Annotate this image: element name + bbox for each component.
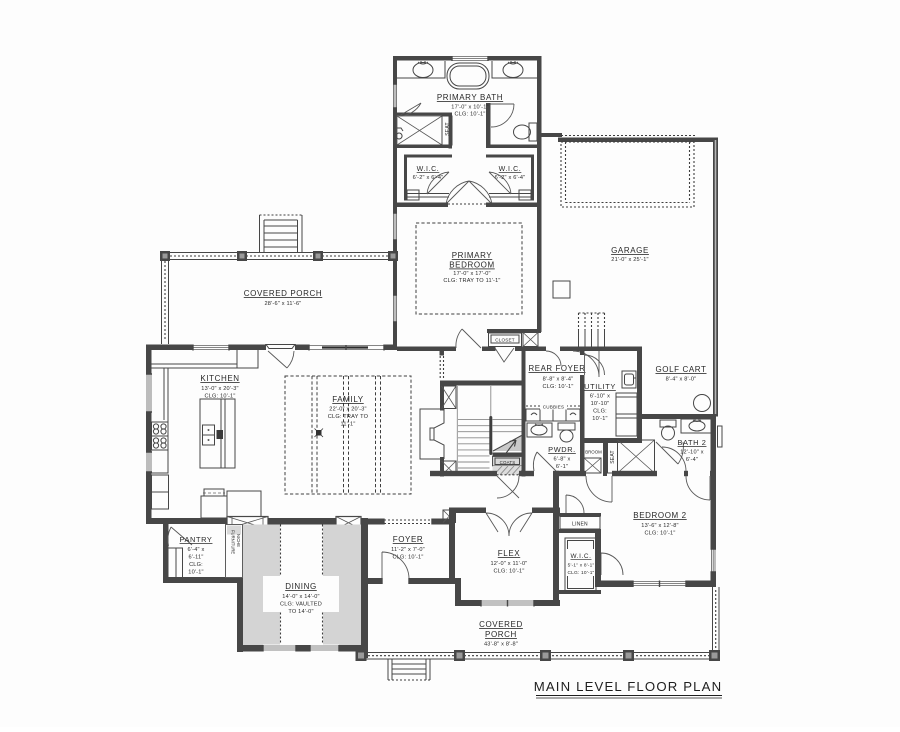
- svg-text:COATS: COATS: [500, 460, 516, 465]
- svg-text:REAR FOYER: REAR FOYER: [529, 364, 586, 373]
- svg-text:12'-10" x: 12'-10" x: [680, 450, 704, 456]
- svg-text:PRIMARY: PRIMARY: [452, 251, 493, 260]
- svg-text:CLG: TRAY TO 11'-1": CLG: TRAY TO 11'-1": [443, 278, 500, 284]
- svg-text:8'-8" x 8'-4": 8'-8" x 8'-4": [543, 377, 574, 383]
- svg-text:6'-4" x: 6'-4" x: [188, 547, 205, 553]
- svg-text:LINEN: LINEN: [572, 522, 588, 528]
- svg-text:10'-10": 10'-10": [591, 401, 610, 407]
- svg-text:BROOM: BROOM: [585, 450, 602, 455]
- svg-text:8'-4" x 8'-0": 8'-4" x 8'-0": [666, 377, 697, 383]
- svg-text:11'-1": 11'-1": [340, 422, 355, 428]
- svg-text:FAMILY: FAMILY: [332, 395, 364, 404]
- svg-text:43'-8" x 8'-8": 43'-8" x 8'-8": [484, 642, 518, 648]
- svg-text:FOYER: FOYER: [393, 535, 424, 544]
- svg-text:6'-8" x: 6'-8" x: [554, 457, 571, 463]
- svg-text:TO 14'-0": TO 14'-0": [288, 609, 313, 615]
- svg-text:MAIN LEVEL FLOOR PLAN: MAIN LEVEL FLOOR PLAN: [534, 679, 723, 694]
- svg-text:CUBBIES: CUBBIES: [543, 405, 565, 410]
- svg-text:17'-0" x 17'-0": 17'-0" x 17'-0": [453, 271, 490, 277]
- svg-text:11'-2" x 7'-0": 11'-2" x 7'-0": [391, 547, 425, 553]
- svg-text:SEAT: SEAT: [610, 450, 616, 464]
- svg-text:COVERED PORCH: COVERED PORCH: [244, 289, 322, 298]
- svg-text:CLOSET: CLOSET: [495, 338, 515, 343]
- svg-text:GARAGE: GARAGE: [611, 246, 649, 255]
- svg-text:6'-10" x: 6'-10" x: [590, 394, 610, 400]
- svg-text:BATH 2: BATH 2: [678, 438, 707, 447]
- svg-text:UTILITY: UTILITY: [584, 382, 616, 391]
- svg-text:SEAT: SEAT: [445, 122, 451, 136]
- svg-text:CLG: 10'-1": CLG: 10'-1": [542, 384, 573, 390]
- svg-text:PANTRY: PANTRY: [180, 535, 213, 544]
- svg-text:NICHE: NICHE: [236, 534, 241, 547]
- svg-text:CLG: 10'-1": CLG: 10'-1": [644, 531, 675, 537]
- svg-text:CLG: VAULTED: CLG: VAULTED: [280, 602, 322, 608]
- svg-text:10'-1": 10'-1": [592, 416, 607, 422]
- svg-text:FLEX: FLEX: [498, 549, 520, 558]
- svg-text:PORCH: PORCH: [485, 630, 517, 639]
- svg-text:BEDROOM: BEDROOM: [449, 261, 495, 270]
- svg-text:PWDR.: PWDR.: [548, 445, 576, 454]
- svg-text:6'-2" x 6'-4": 6'-2" x 6'-4": [413, 175, 444, 181]
- svg-text:28'-6" x 11'-6": 28'-6" x 11'-6": [265, 301, 302, 307]
- svg-text:22'-0" x 20'-3": 22'-0" x 20'-3": [329, 407, 366, 413]
- svg-text:W.I.C.: W.I.C.: [571, 553, 592, 560]
- svg-text:21'-0" x 25'-1": 21'-0" x 25'-1": [611, 257, 648, 263]
- svg-text:GOLF CART: GOLF CART: [655, 365, 706, 374]
- svg-text:CLG: TRAY TO: CLG: TRAY TO: [328, 414, 369, 420]
- svg-text:6'-11": 6'-11": [188, 555, 203, 561]
- svg-text:13'-0" x 20'-3": 13'-0" x 20'-3": [201, 386, 238, 392]
- svg-text:COVERED: COVERED: [479, 620, 523, 629]
- svg-text:CLG:: CLG:: [189, 562, 203, 568]
- svg-text:13'-6" x 12'-8": 13'-6" x 12'-8": [641, 523, 678, 529]
- svg-text:12'-0" x 11'-0": 12'-0" x 11'-0": [491, 561, 528, 567]
- svg-text:CLG: 10'-1": CLG: 10'-1": [392, 555, 423, 561]
- svg-text:5'-1" x 8'-1": 5'-1" x 8'-1": [568, 563, 595, 569]
- svg-text:6'-4": 6'-4": [686, 457, 698, 463]
- svg-text:PRIMARY BATH: PRIMARY BATH: [437, 93, 503, 102]
- svg-text:6'-1": 6'-1": [556, 464, 568, 470]
- svg-text:CLG:: CLG:: [593, 409, 607, 415]
- svg-text:CLG: 10'-1": CLG: 10'-1": [493, 569, 524, 575]
- svg-text:10'-1": 10'-1": [188, 570, 203, 576]
- svg-text:KITCHEN: KITCHEN: [200, 374, 239, 383]
- svg-text:CLG: 10'-1": CLG: 10'-1": [568, 570, 595, 576]
- svg-text:6'-2" x 6'-4": 6'-2" x 6'-4": [495, 175, 526, 181]
- svg-text:17'-0" x 10'-1": 17'-0" x 10'-1": [451, 105, 488, 111]
- svg-text:FURNITURE: FURNITURE: [231, 530, 236, 554]
- svg-text:DINING: DINING: [285, 582, 317, 591]
- svg-text:W.I.C.: W.I.C.: [417, 166, 440, 173]
- svg-text:BEDROOM 2: BEDROOM 2: [633, 511, 686, 520]
- svg-text:14'-0" x 14'-0": 14'-0" x 14'-0": [282, 594, 319, 600]
- svg-text:W.I.C.: W.I.C.: [499, 166, 522, 173]
- svg-text:CLG: 10'-1": CLG: 10'-1": [454, 112, 485, 118]
